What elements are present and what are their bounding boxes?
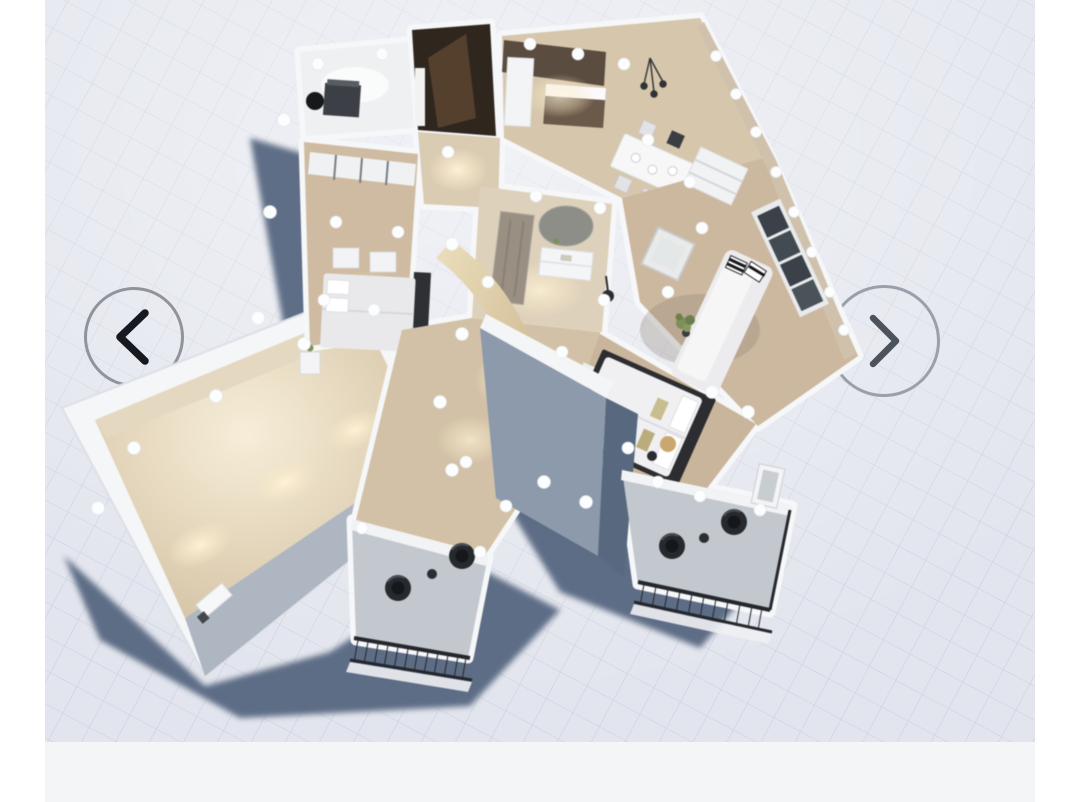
chevron-right-icon (860, 311, 908, 371)
floorplan-viewer (0, 0, 1080, 802)
footer-bar (45, 742, 1035, 802)
chevron-left-icon (108, 305, 160, 369)
carousel-prev-button[interactable] (84, 287, 184, 387)
carousel-next-button[interactable] (828, 285, 940, 397)
background-canvas (0, 0, 1080, 802)
